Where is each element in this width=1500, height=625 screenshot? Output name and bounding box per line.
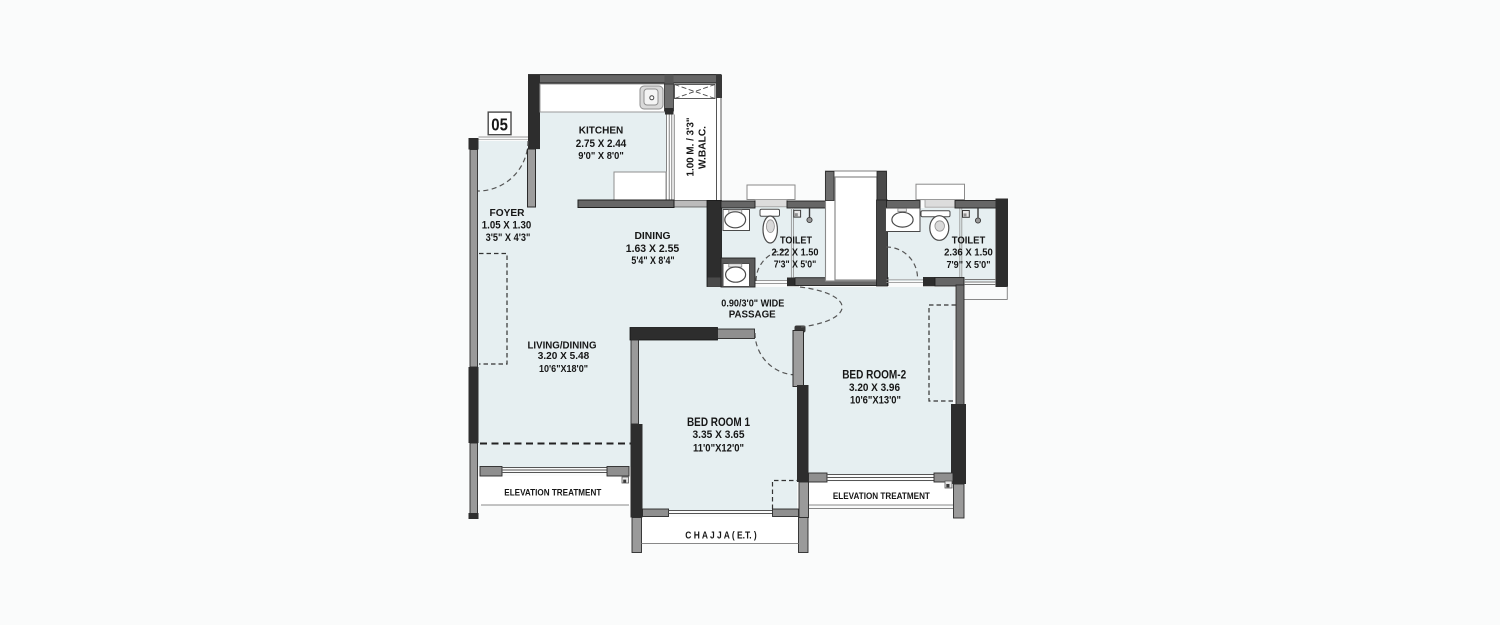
svg-text:2.36 X 1.50: 2.36 X 1.50 [944,247,993,259]
svg-text:1.00 M. / 3'3": 1.00 M. / 3'3" [686,118,697,177]
svg-text:1.05 X 1.30: 1.05 X 1.30 [482,220,532,232]
svg-text:3.35 X 3.65: 3.35 X 3.65 [693,429,745,441]
svg-text:2.75 X 2.44: 2.75 X 2.44 [576,138,627,150]
svg-text:PASSAGE: PASSAGE [729,308,776,320]
svg-text:KITCHEN: KITCHEN [579,125,624,136]
svg-text:W.BALC.: W.BALC. [698,126,709,169]
svg-text:BED ROOM 1: BED ROOM 1 [687,415,750,429]
svg-text:C H A J J A ( E.T. ): C H A J J A ( E.T. ) [685,531,757,542]
svg-text:TOILET: TOILET [952,236,986,247]
svg-text:11'0"X12'0": 11'0"X12'0" [693,442,744,454]
svg-text:FOYER: FOYER [490,208,526,219]
svg-text:3.20 X 3.96: 3.20 X 3.96 [849,382,900,394]
svg-text:2.22 X 1.50: 2.22 X 1.50 [772,247,819,259]
svg-text:5'4" X 8'4": 5'4" X 8'4" [631,255,674,267]
svg-text:ELEVATION TREATMENT: ELEVATION TREATMENT [504,487,601,498]
svg-text:3.20 X 5.48: 3.20 X 5.48 [538,351,590,362]
svg-text:7'9" X 5'0": 7'9" X 5'0" [947,259,991,271]
svg-text:7'3" X 5'0": 7'3" X 5'0" [774,258,817,270]
svg-text:TOILET: TOILET [780,236,812,247]
svg-text:10'6"X13'0": 10'6"X13'0" [850,395,901,407]
svg-text:1.63 X 2.55: 1.63 X 2.55 [626,243,679,255]
svg-text:10'6"X18'0": 10'6"X18'0" [539,364,588,375]
svg-text:9'0" X 8'0": 9'0" X 8'0" [578,150,624,162]
svg-text:05: 05 [491,114,508,134]
svg-text:3'5" X 4'3": 3'5" X 4'3" [486,232,531,244]
svg-text:ELEVATION TREATMENT: ELEVATION TREATMENT [833,491,930,502]
svg-text:LIVING/DINING: LIVING/DINING [528,340,597,351]
svg-text:DINING: DINING [635,231,671,242]
svg-text:BED ROOM-2: BED ROOM-2 [842,368,906,382]
